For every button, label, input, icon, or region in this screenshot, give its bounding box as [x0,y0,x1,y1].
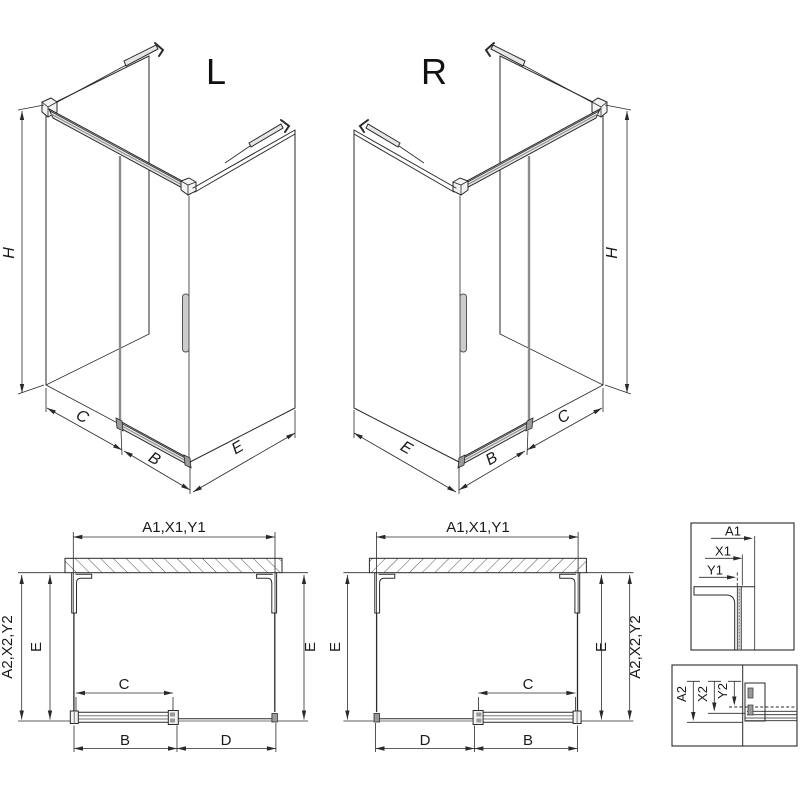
iso-view-left: L H C B E [1,43,295,494]
dim-label-door-right: B [483,449,501,469]
iso-right-geometry [354,43,631,494]
plan-left-geometry [18,532,308,752]
plan-left-dim-outer: A2,X2,Y2 [0,615,16,678]
plan-view-left: A1,X1,Y1 A2,X2,Y2 E E C B D [0,519,319,752]
detail-bottom-dim-y: Y2 [715,683,730,699]
detail-view-top: A1 X1 Y1 [691,523,794,650]
dim-label-height-right: H [604,247,621,259]
plan-left-dim-door: B [120,732,130,749]
plan-right-dim-opening: C [523,676,534,693]
technical-drawing-page: L H C B E R H E B C A1,X1,Y1 A2,X2,Y2 E … [0,0,800,800]
dim-label-depth-right: E [397,438,415,458]
detail-bottom-dim-a: A2 [674,686,689,702]
dim-label-door-left: B [145,449,163,469]
iso-left-geometry [18,43,295,494]
variant-label-right: R [421,51,447,92]
dim-label-opening-right: C [555,407,574,428]
plan-right-dim-depth-left: E [327,642,344,652]
plan-left-dim-opening: C [119,676,130,693]
plan-left-dim-top: A1,X1,Y1 [142,519,205,536]
dim-label-depth-left: E [229,438,247,458]
plan-right-dim-depth-right: E [593,642,610,652]
plan-right-dim-outer: A2,X2,Y2 [627,615,644,678]
iso-view-right: R H E B C [354,43,631,494]
detail-view-bottom: A2 X2 Y2 [672,665,797,746]
variant-label-left: L [206,51,226,92]
detail-top-dim-y: Y1 [707,563,723,578]
plan-view-right: A1,X1,Y1 E E A2,X2,Y2 C D B [327,519,644,752]
plan-right-dim-top: A1,X1,Y1 [446,519,509,536]
shower-enclosure-drawing: L H C B E R H E B C A1,X1,Y1 A2,X2,Y2 E … [0,0,800,800]
dim-label-height-left: H [1,247,18,259]
plan-right-geometry [343,532,633,752]
plan-right-dim-fixed: D [420,732,431,749]
detail-bottom-dim-x: X2 [695,686,710,702]
detail-top-dim-a: A1 [725,524,741,539]
plan-right-dim-door: B [523,732,533,749]
plan-left-dim-depth-left: E [28,642,45,652]
plan-left-dim-depth-right: E [302,642,319,652]
detail-top-dim-x: X1 [715,544,731,559]
plan-left-dim-fixed: D [221,732,232,749]
